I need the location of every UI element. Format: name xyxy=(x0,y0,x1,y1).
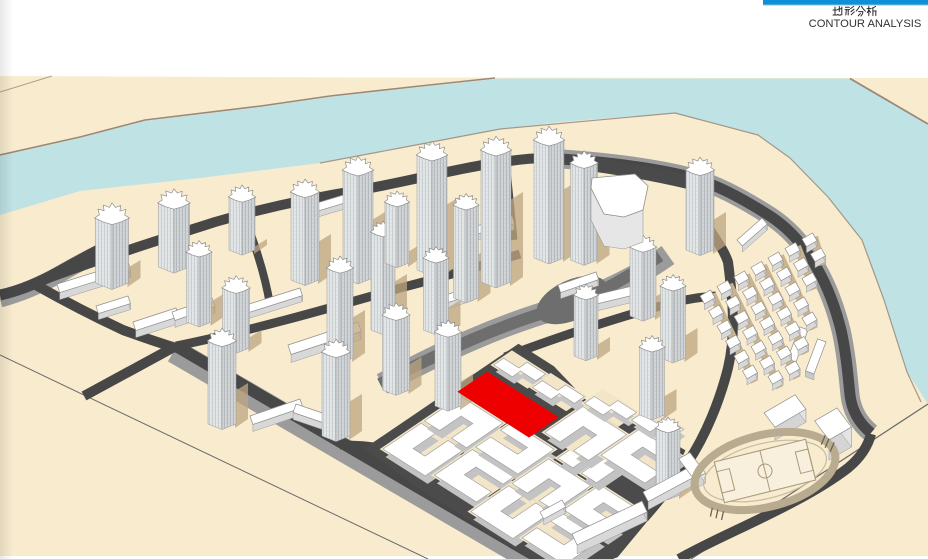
svg-text:CONTOUR ANALYSIS: CONTOUR ANALYSIS xyxy=(809,18,922,30)
